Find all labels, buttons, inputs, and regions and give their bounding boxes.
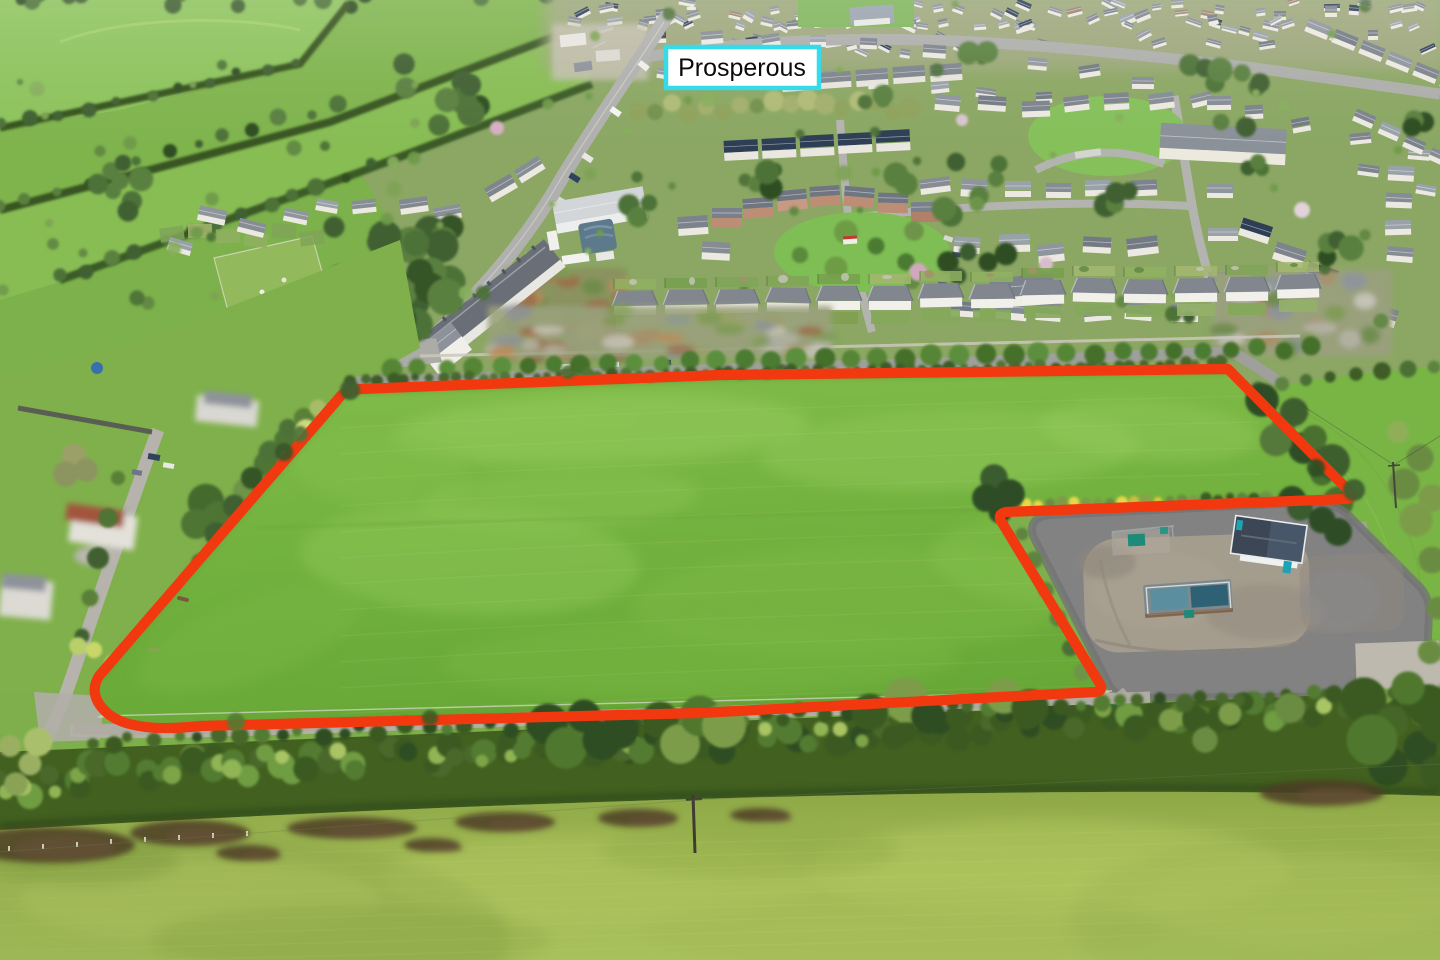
svg-text:Prosperous: Prosperous bbox=[678, 54, 806, 82]
